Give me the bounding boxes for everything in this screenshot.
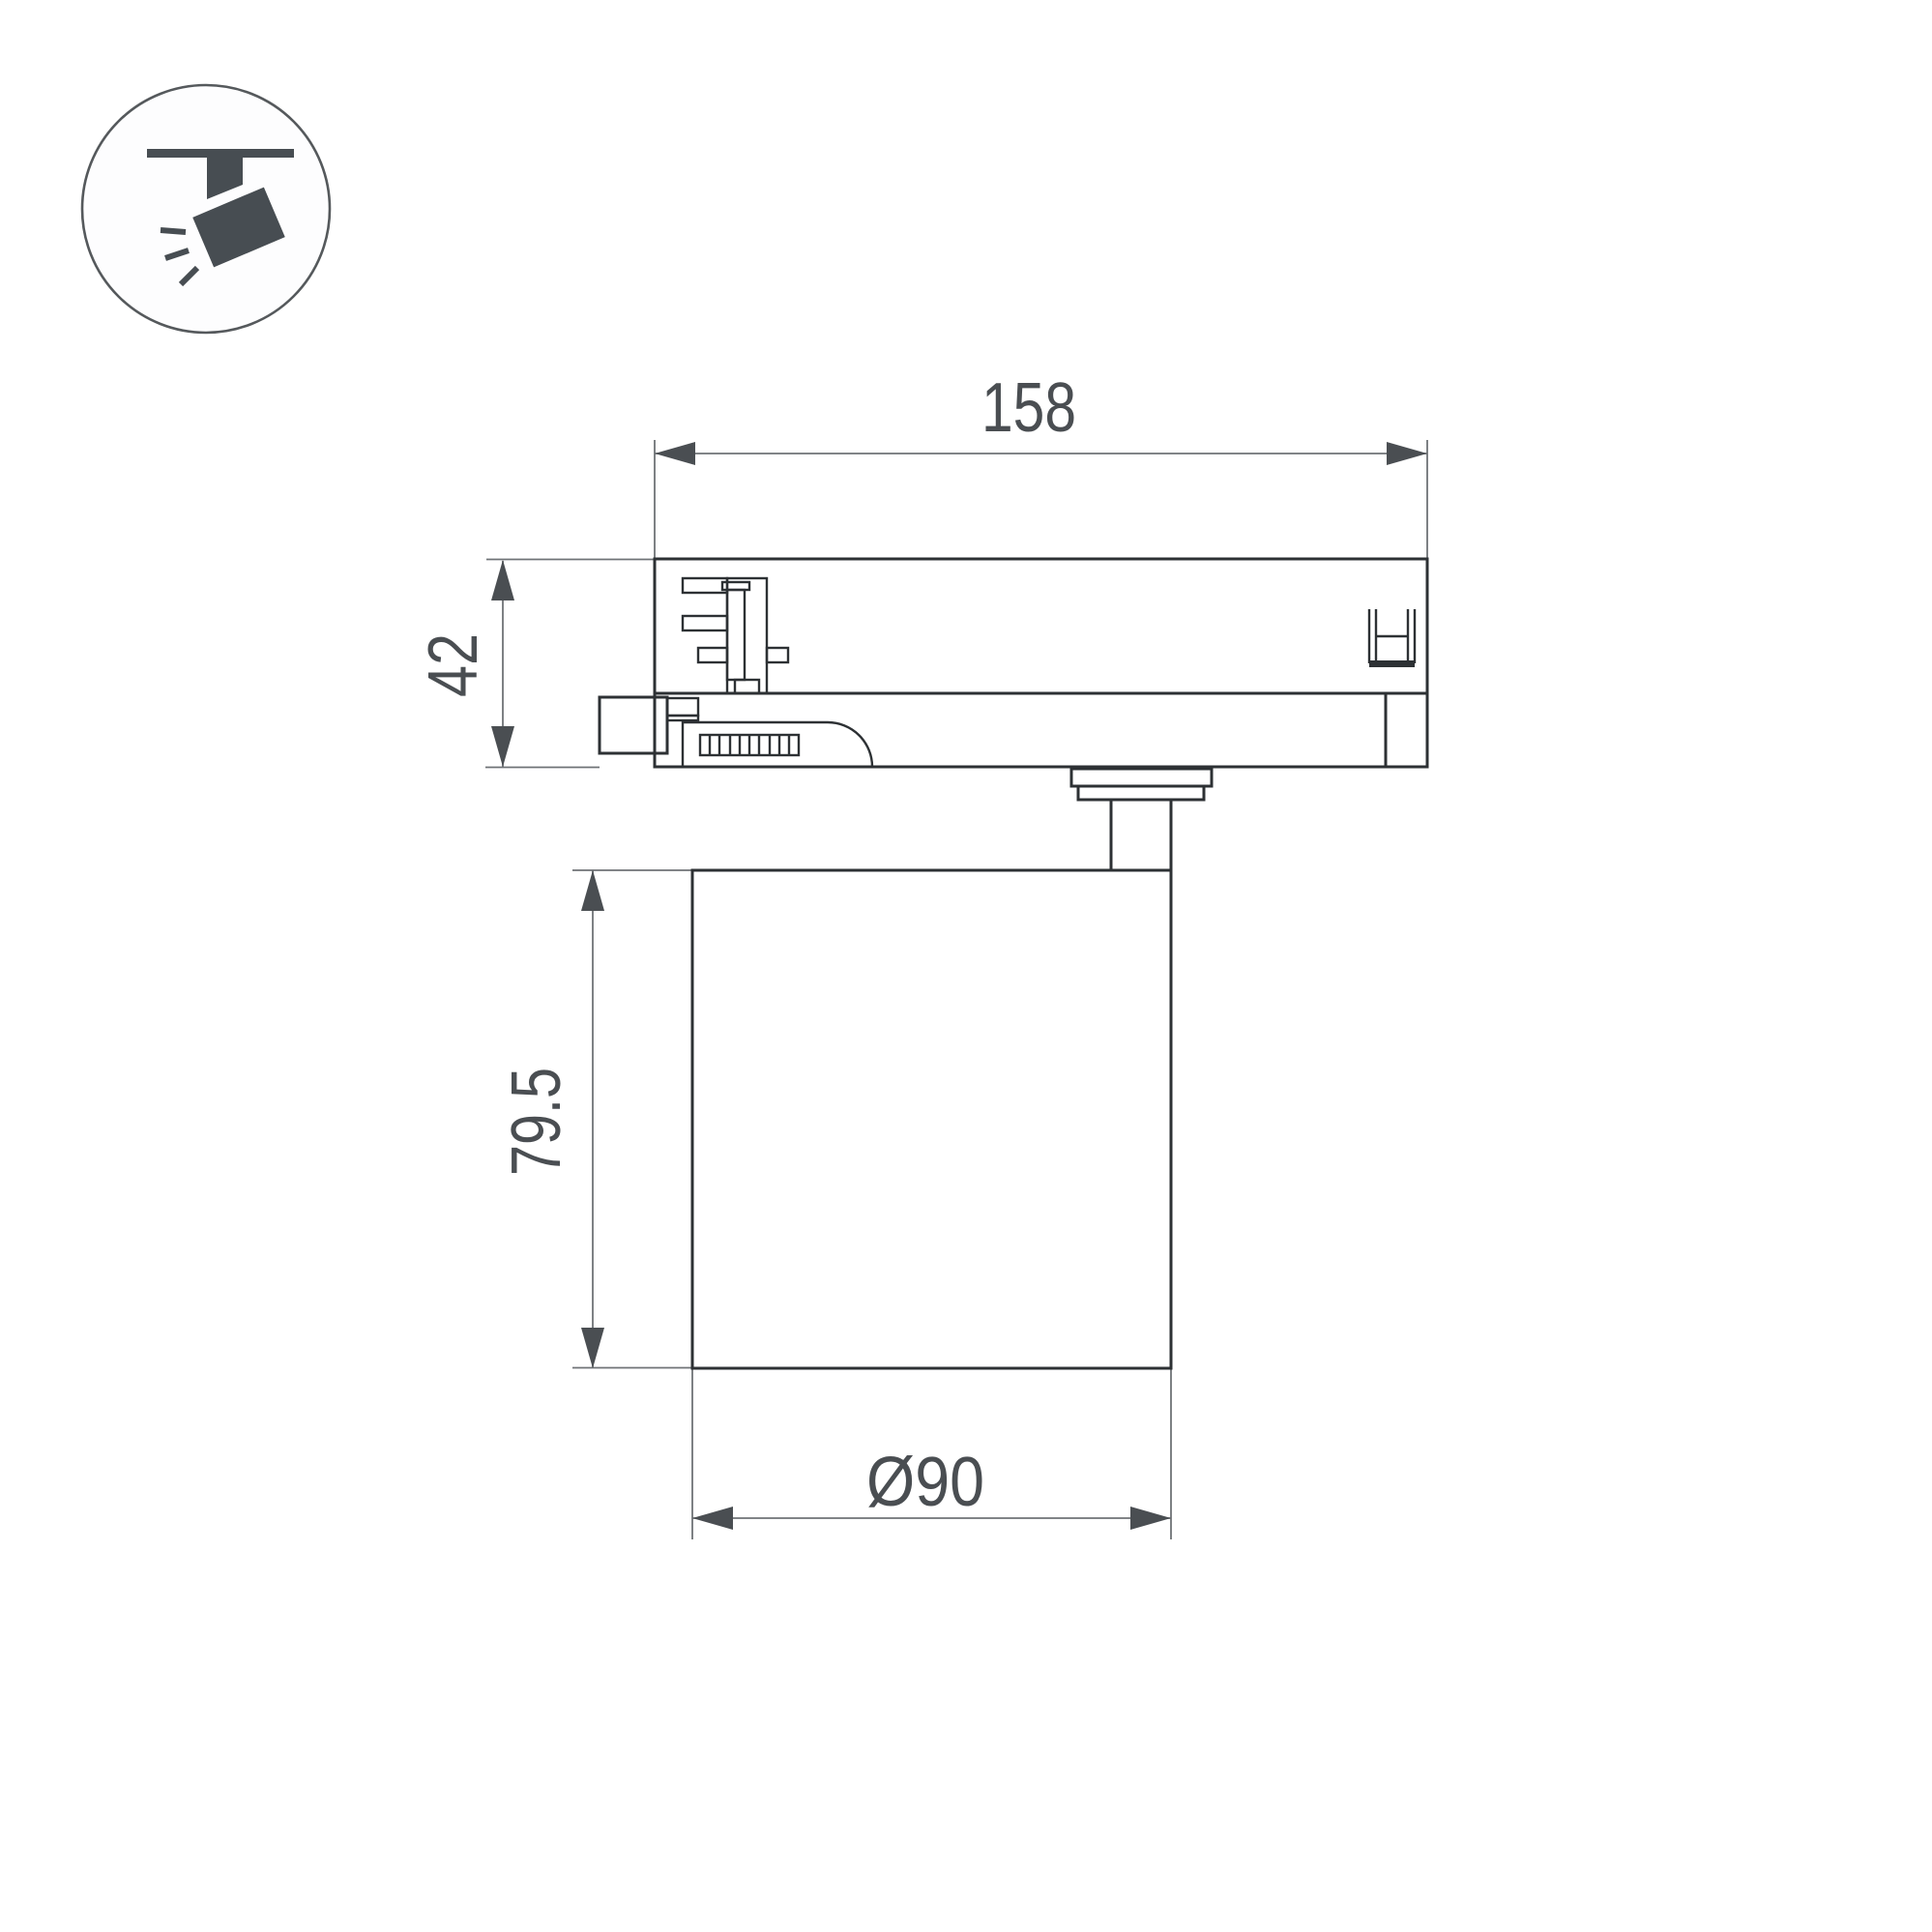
arrowhead-right: [1130, 1507, 1171, 1530]
carriage-body: [727, 578, 767, 693]
dimension-track-adapter-height: 42: [415, 560, 654, 768]
contact-prong-middle: [683, 616, 727, 630]
dimension-annotations: 158 42 79.5 Ø90: [415, 369, 1427, 1539]
contact-prong-top: [683, 578, 727, 593]
dimension-body-diameter: Ø90: [692, 1369, 1171, 1539]
clip-base: [1369, 660, 1415, 667]
lock-knob: [600, 697, 667, 753]
adapter-housing: [655, 559, 1427, 693]
contact-carriage: [683, 578, 788, 693]
latch-tongue: [667, 716, 698, 720]
contact-post-foot: [735, 680, 759, 693]
arrowhead-top: [581, 870, 604, 911]
arrowhead-right: [1387, 442, 1427, 465]
track-light-fixture: [600, 559, 1427, 1368]
retaining-clip: [1369, 609, 1415, 667]
icon-circle: [82, 85, 330, 333]
drawing-canvas: 158 42 79.5 Ø90: [0, 0, 1932, 1932]
dimension-value-d90: Ø90: [866, 1444, 984, 1521]
track-spotlight-icon: [82, 85, 330, 333]
neck-flange-lower: [1078, 786, 1204, 800]
contact-prong-right: [767, 648, 788, 662]
grip-ribs: [710, 735, 789, 755]
neck-flange-upper: [1071, 769, 1212, 786]
arrowhead-bottom: [491, 726, 514, 767]
dimension-value-79-5: 79.5: [498, 1068, 575, 1176]
arrowhead-top: [491, 560, 514, 600]
lever-housing: [683, 722, 872, 767]
dimension-value-158: 158: [981, 369, 1076, 447]
ribbed-grip: [700, 735, 799, 755]
arrowhead-bottom: [581, 1328, 604, 1368]
swivel-neck: [1071, 769, 1212, 870]
contact-post: [727, 590, 745, 680]
arrowhead-left: [655, 442, 695, 465]
contact-prong-lower: [698, 648, 727, 662]
technical-drawing-svg: 158 42 79.5 Ø90: [0, 0, 1932, 1932]
arrowhead-left: [692, 1507, 733, 1530]
latch-block: [667, 698, 698, 716]
neck-stem: [1111, 800, 1171, 870]
ceiling-track-line: [147, 149, 294, 158]
light-ray: [161, 230, 186, 232]
dimension-value-42: 42: [415, 633, 492, 697]
lamp-body-cylinder: [692, 870, 1171, 1368]
dimension-track-adapter-length: 158: [655, 369, 1427, 559]
dimension-body-height: 79.5: [498, 870, 691, 1368]
